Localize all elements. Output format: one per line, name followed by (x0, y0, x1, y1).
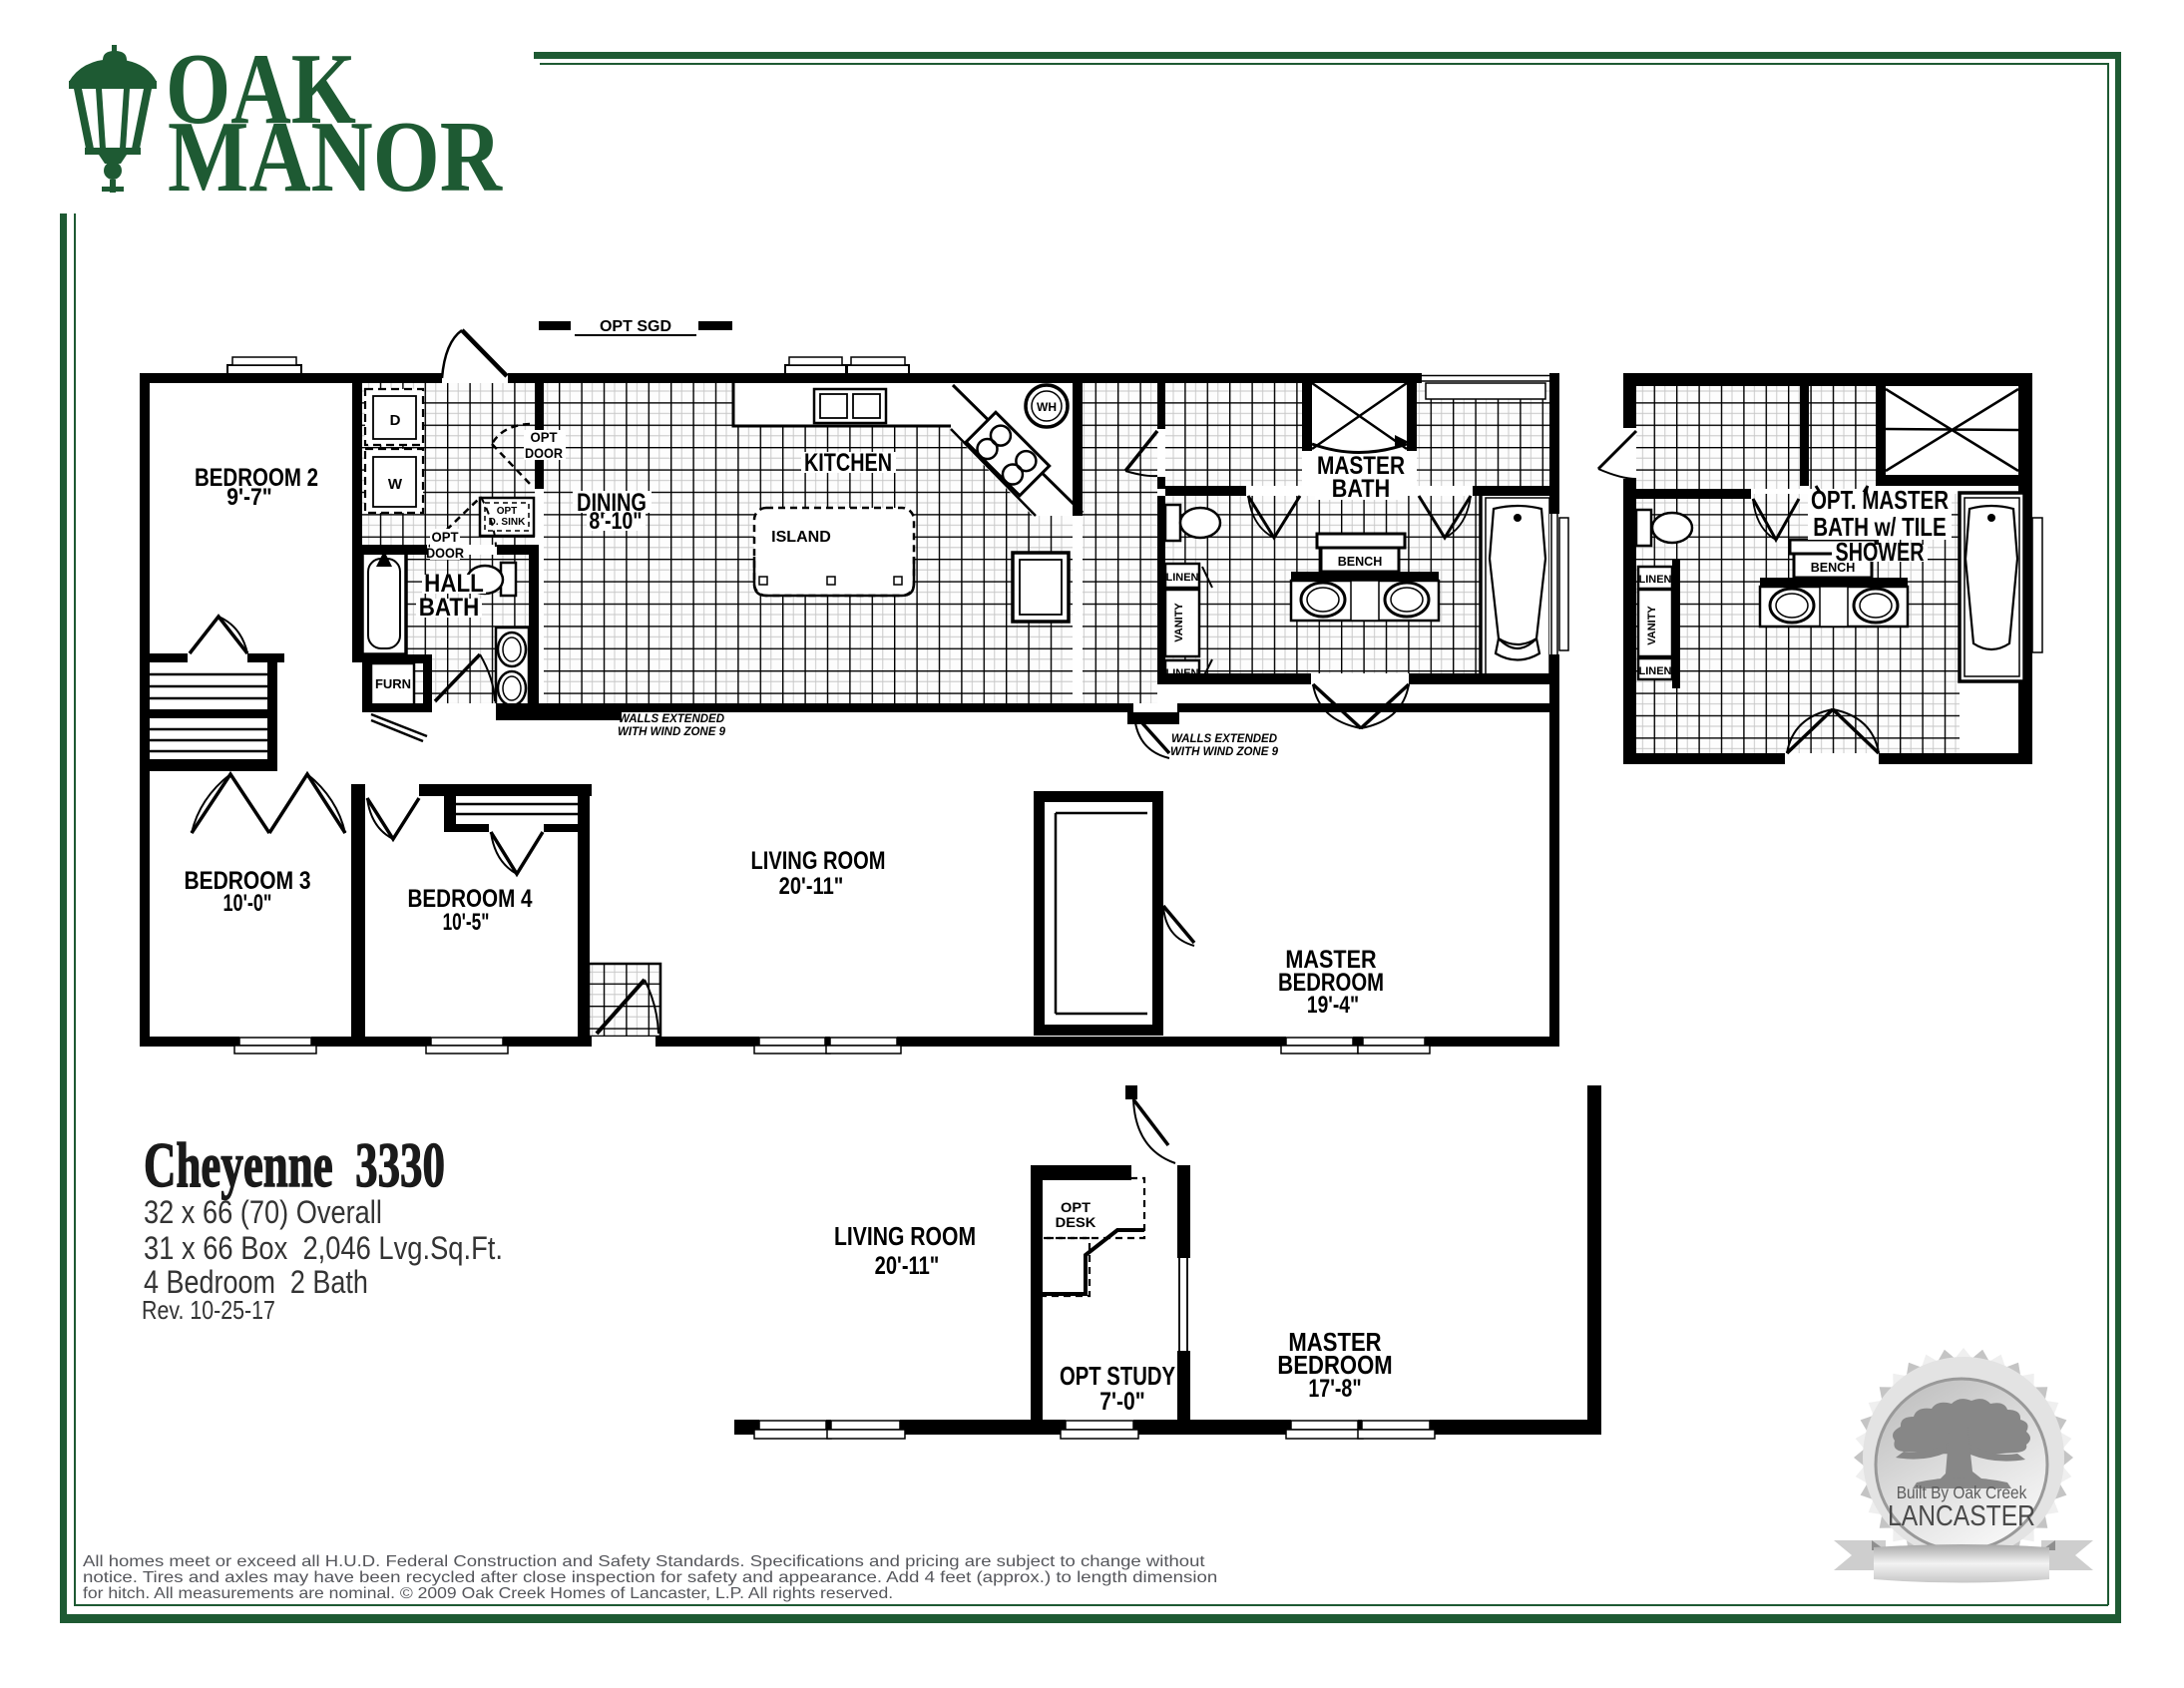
svg-text:LANCASTER: LANCASTER (1888, 1499, 2035, 1531)
svg-text:W: W (388, 476, 403, 493)
svg-text:FURN: FURN (375, 676, 411, 691)
svg-text:Cheyenne 3330: Cheyenne 3330 (144, 1129, 445, 1200)
svg-text:VANITY: VANITY (1173, 603, 1185, 642)
svg-text:BENCH: BENCH (1338, 555, 1383, 569)
svg-text:LIVING ROOM: LIVING ROOM (834, 1223, 976, 1252)
svg-text:31 x 66 Box 2,046 Lvg.Sq.Ft.: 31 x 66 Box 2,046 Lvg.Sq.Ft. (144, 1231, 503, 1266)
svg-text:LINEN: LINEN (1639, 665, 1672, 677)
svg-text:MANOR: MANOR (168, 101, 503, 212)
svg-text:WITH WIND ZONE 9: WITH WIND ZONE 9 (618, 726, 726, 738)
svg-text:9'-7": 9'-7" (226, 484, 271, 511)
svg-text:D: D (390, 412, 401, 429)
svg-text:DOOR: DOOR (525, 445, 563, 461)
svg-text:LIVING ROOM: LIVING ROOM (750, 846, 885, 875)
svg-text:7'-0": 7'-0" (1099, 1387, 1144, 1415)
svg-text:WITH WIND ZONE 9: WITH WIND ZONE 9 (1170, 746, 1279, 758)
svg-text:WH: WH (1037, 400, 1057, 414)
svg-text:20'-11": 20'-11" (779, 872, 844, 899)
svg-text:32 x 66 (70) Overall: 32 x 66 (70) Overall (144, 1195, 382, 1231)
svg-text:WALLS EXTENDED: WALLS EXTENDED (619, 713, 724, 725)
svg-text:10'-5": 10'-5" (443, 909, 490, 935)
svg-text:10'-0": 10'-0" (223, 891, 272, 917)
svg-text:DESK: DESK (1056, 1215, 1096, 1231)
svg-text:20'-11": 20'-11" (875, 1251, 940, 1280)
svg-text:D. SINK: D. SINK (489, 517, 526, 528)
svg-text:OPT. MASTER: OPT. MASTER (1811, 486, 1949, 515)
svg-text:BENCH: BENCH (1811, 561, 1856, 575)
svg-text:OPT: OPT (497, 506, 518, 517)
svg-text:ISLAND: ISLAND (771, 528, 831, 546)
svg-text:BEDROOM 4: BEDROOM 4 (407, 884, 532, 912)
svg-text:OPT: OPT (531, 430, 559, 445)
svg-text:DOOR: DOOR (426, 545, 464, 561)
svg-text:VANITY: VANITY (1646, 606, 1658, 645)
svg-text:OPT: OPT (432, 530, 460, 545)
svg-text:OPT SGD: OPT SGD (600, 318, 671, 335)
svg-text:OPT: OPT (1061, 1200, 1091, 1216)
svg-text:LINEN: LINEN (1639, 574, 1672, 586)
svg-text:WALLS EXTENDED: WALLS EXTENDED (1171, 733, 1277, 745)
svg-text:Rev. 10-25-17: Rev. 10-25-17 (142, 1296, 275, 1325)
svg-text:BATH: BATH (419, 595, 479, 622)
svg-text:8'-10": 8'-10" (589, 507, 642, 534)
svg-text:17'-8": 17'-8" (1308, 1375, 1361, 1403)
svg-text:for hitch. All measurements ar: for hitch. All measurements are nominal.… (83, 1584, 893, 1602)
svg-text:OPT STUDY: OPT STUDY (1060, 1362, 1175, 1391)
svg-text:BATH: BATH (1332, 475, 1390, 503)
svg-text:KITCHEN: KITCHEN (804, 449, 892, 477)
svg-text:LINEN: LINEN (1166, 572, 1199, 584)
svg-text:19'-4": 19'-4" (1307, 991, 1359, 1019)
